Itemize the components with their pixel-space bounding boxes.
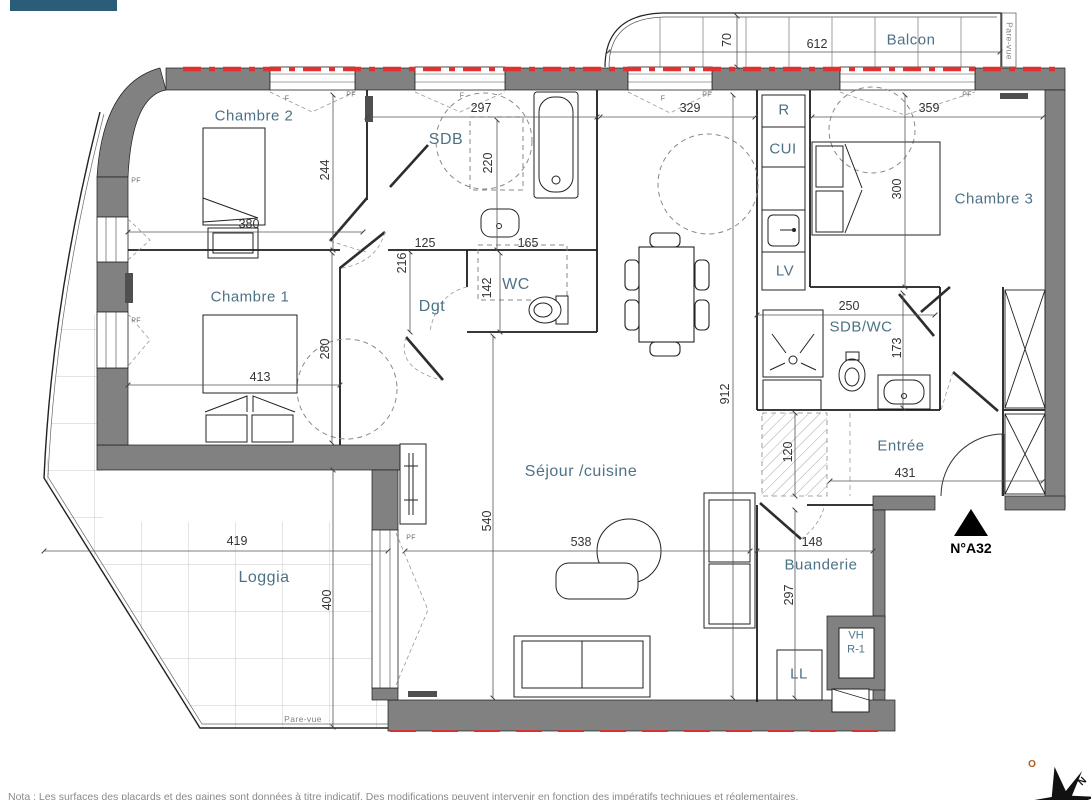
pare-vue-right-label: Pare-vue <box>1005 22 1014 60</box>
dim-431: 431 <box>895 467 916 480</box>
dim-329: 329 <box>680 102 701 115</box>
pf-label-1: PF <box>346 92 356 99</box>
dim-165: 165 <box>518 237 539 250</box>
room-label-wc: WC <box>502 277 530 293</box>
vent-label-line2: R-1 <box>847 645 865 656</box>
dim-380: 380 <box>239 218 260 231</box>
f-label-3: F <box>661 96 666 103</box>
floorplan-drawing <box>0 0 1091 800</box>
dim-359: 359 <box>919 102 940 115</box>
disclaimer-note: Nota : Les surfaces des placards et des … <box>8 791 1086 800</box>
dim-70: 70 <box>721 33 734 47</box>
dim-419: 419 <box>227 535 248 548</box>
room-label-balcon: Balcon <box>887 33 936 48</box>
room-label-loggia: Loggia <box>238 570 289 586</box>
room-label-entree: Entrée <box>877 439 924 454</box>
room-label-chambre3: Chambre 3 <box>955 192 1034 207</box>
dim-280: 280 <box>319 339 332 360</box>
dim-612: 612 <box>807 38 828 51</box>
appliance-label-dishwasher: LV <box>776 264 794 279</box>
dim-540: 540 <box>481 511 494 532</box>
dim-297-top: 297 <box>471 102 492 115</box>
dim-173: 173 <box>891 338 904 359</box>
appliance-label-refrigerator: R <box>778 103 789 118</box>
pf-label-5: PF <box>131 318 141 325</box>
floorplan-page: Chambre 2 Chambre 1 Chambre 3 SDB WC Dgt… <box>0 0 1091 800</box>
room-label-sdb: SDB <box>429 132 463 148</box>
dim-148: 148 <box>802 536 823 549</box>
appliance-label-washing-machine: LL <box>790 667 808 682</box>
pf-label-3: PF <box>962 92 972 99</box>
pf-label-6: PF <box>406 535 416 542</box>
dim-297-buanderie: 297 <box>783 585 796 606</box>
appliance-label-kitchen: CUI <box>769 142 796 157</box>
dim-912: 912 <box>719 384 732 405</box>
pf-label-4: PF <box>131 178 141 185</box>
compass-west-label: O <box>1028 760 1036 770</box>
f-label-2: F <box>460 93 465 100</box>
pare-vue-bottom-label: Pare-vue <box>284 715 322 724</box>
dim-142: 142 <box>481 278 494 299</box>
unit-number-label: N°A32 <box>950 541 991 555</box>
dim-244: 244 <box>319 160 332 181</box>
vent-label-line1: VH <box>848 631 863 642</box>
pf-label-2: PF <box>702 92 712 99</box>
f-label-1: F <box>285 96 290 103</box>
room-label-buanderie: Buanderie <box>785 558 858 573</box>
dim-413: 413 <box>250 371 271 384</box>
dim-125: 125 <box>415 237 436 250</box>
dim-216: 216 <box>396 253 409 274</box>
room-label-dgt: Dgt <box>419 299 445 315</box>
dim-400: 400 <box>321 590 334 611</box>
dim-300: 300 <box>891 179 904 200</box>
room-label-chambre1: Chambre 1 <box>211 290 290 305</box>
room-label-chambre2: Chambre 2 <box>215 109 294 124</box>
room-label-sdb-wc: SDB/WC <box>830 320 893 335</box>
dim-250: 250 <box>839 300 860 313</box>
dim-538: 538 <box>571 536 592 549</box>
dim-220: 220 <box>482 153 495 174</box>
room-label-sejour: Séjour /cuisine <box>525 464 637 480</box>
dim-120: 120 <box>782 442 795 463</box>
